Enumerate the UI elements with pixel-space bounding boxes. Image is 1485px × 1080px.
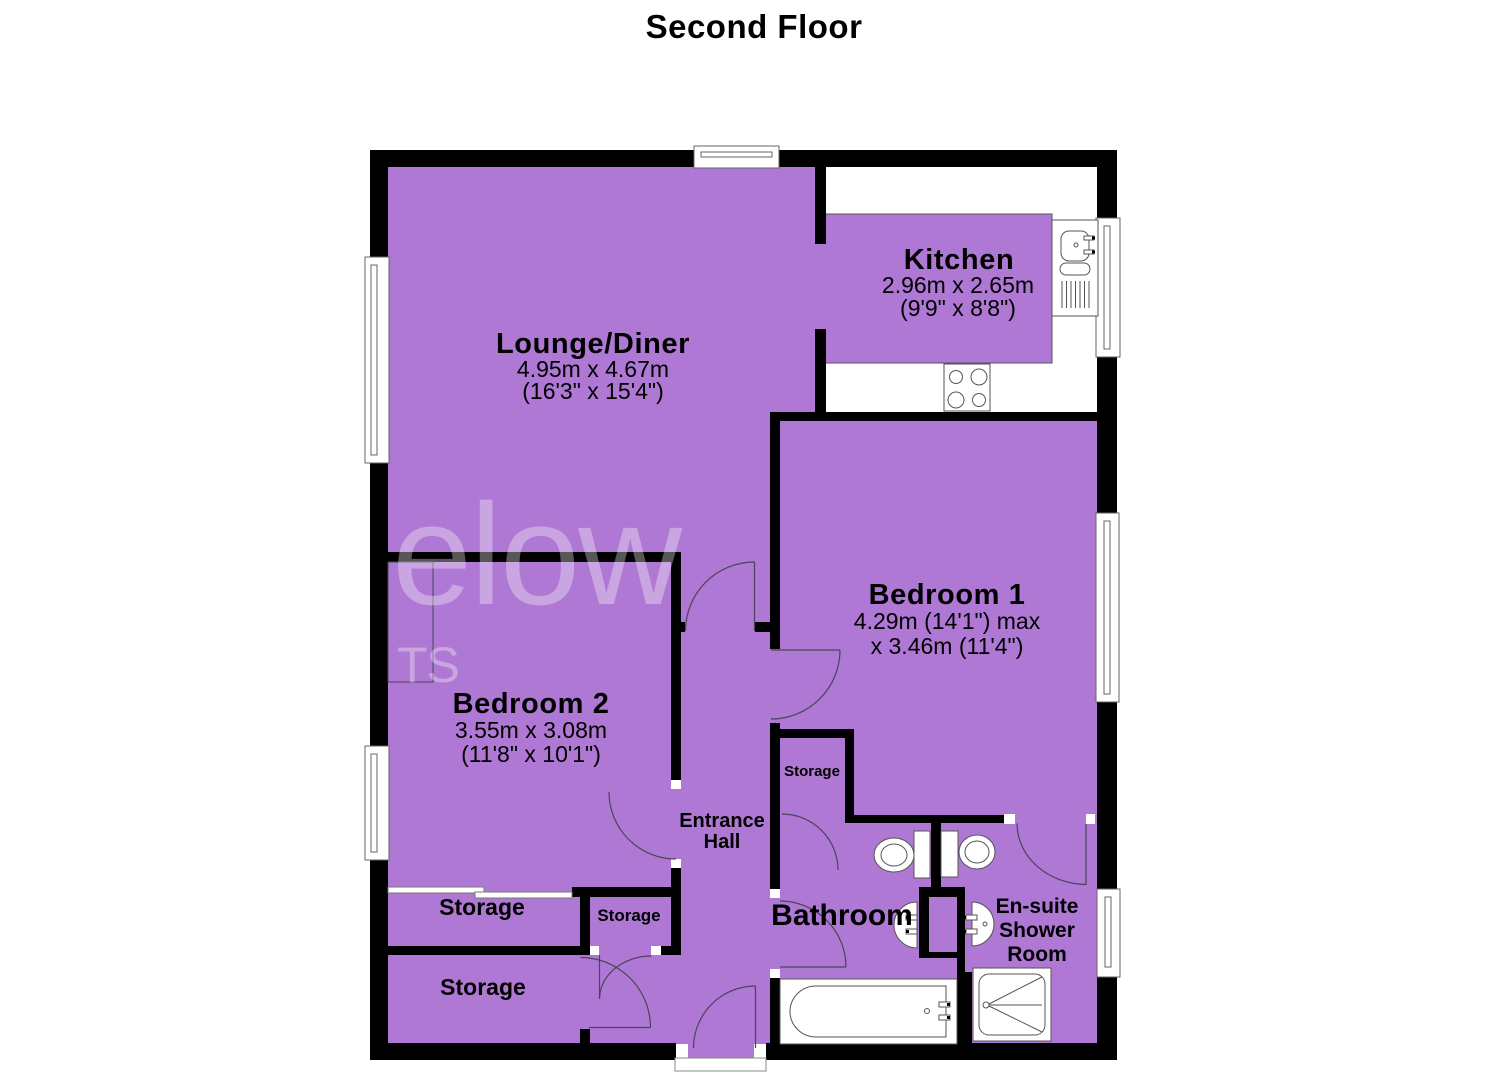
svg-text:4.29m (14'1") max: 4.29m (14'1") max (854, 608, 1041, 634)
svg-text:En-suite: En-suite (996, 895, 1079, 918)
svg-text:(9'9" x 8'8"): (9'9" x 8'8") (900, 295, 1016, 321)
svg-text:x 3.46m (11'4"): x 3.46m (11'4") (871, 633, 1024, 659)
svg-text:Storage: Storage (439, 894, 525, 920)
svg-text:(11'8" x 10'1"): (11'8" x 10'1") (461, 741, 601, 767)
svg-text:Hall: Hall (704, 831, 741, 853)
svg-text:Bedroom 2: Bedroom 2 (453, 688, 610, 720)
svg-text:Shower: Shower (999, 919, 1075, 942)
svg-text:Room: Room (1007, 943, 1067, 966)
svg-text:3.55m x 3.08m: 3.55m x 3.08m (455, 717, 607, 743)
svg-text:Bathroom: Bathroom (771, 899, 913, 932)
svg-text:elow: elow (392, 474, 683, 635)
svg-text:Storage: Storage (784, 763, 840, 780)
svg-text:Storage: Storage (597, 906, 660, 925)
svg-text:Bedroom 1: Bedroom 1 (869, 579, 1026, 611)
svg-text:Storage: Storage (440, 974, 526, 1000)
svg-text:TS: TS (397, 637, 459, 693)
svg-text:(16'3" x 15'4"): (16'3" x 15'4") (522, 378, 663, 404)
svg-text:Second Floor: Second Floor (646, 8, 863, 45)
svg-text:Entrance: Entrance (679, 810, 765, 832)
